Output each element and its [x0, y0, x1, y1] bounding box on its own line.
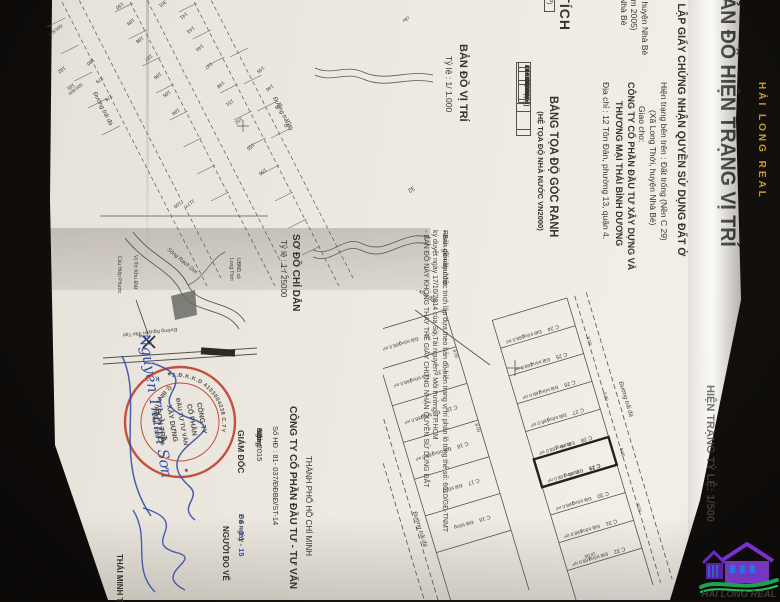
legend-label: Ranh giới khu đất [440, 230, 450, 285]
svg-text:C 21: C 21 [423, 330, 436, 339]
grantee-company-line1: CÔNG TY CỔ PHẦN ĐẦU TƯ XÂY DỰNG VÀ [626, 82, 636, 270]
svg-text:C 19: C 19 [445, 403, 458, 412]
site-pointer-label: Vị trí khu đất [406, 290, 437, 305]
map1000-scale: Tỷ lệ : 1/ 1.000 [444, 56, 454, 112]
svg-text:168.0 m²: 168.0 m² [383, 340, 402, 351]
svg-text:147: 147 [203, 60, 213, 70]
city-date-line: THÀNH PHỐ HỒ CHÍ MINH [304, 456, 313, 556]
svg-text:182: 182 [56, 64, 66, 74]
svg-text:C 17: C 17 [467, 477, 480, 486]
svg-text:168.0 m²: 168.0 m² [513, 361, 533, 372]
svg-text:146: 146 [264, 82, 274, 92]
svg-text:C 26: C 26 [563, 378, 576, 387]
surveyor-signature [118, 498, 213, 602]
coord-table-title: BẢNG TỌA ĐỘ GÓC RANH [547, 62, 559, 271]
logo-text: HAI LONG REAL [702, 589, 777, 599]
svg-text:168.0 m²: 168.0 m² [392, 377, 412, 388]
svg-text:151: 151 [224, 97, 234, 107]
svg-text:100: 100 [172, 199, 182, 209]
grantee-address: Địa chỉ : 12 Tôn Đản, phường 13, quận 4. [601, 82, 611, 239]
road-label: Đường trải đá [617, 381, 635, 419]
surveying-company-line: CÔNG TY CỔ PHẦN ĐẦU TƯ - TƯ VẤN [287, 406, 298, 589]
index-map-scale: Tỷ lệ : 1 / 25000 [279, 240, 288, 297]
bridge-label: Cầu Hiệp Phước [116, 256, 122, 294]
area-table-title: DIỆN TÍCH [557, 0, 573, 31]
svg-text:155: 155 [245, 141, 255, 151]
svg-text:606,600: 606,600 [47, 23, 63, 37]
svg-text:189: 189 [125, 16, 135, 26]
svg-text:8.00: 8.00 [635, 503, 642, 513]
ubnd-label: UBND xã [235, 258, 241, 279]
index-map-title: SƠ ĐỒ CHỈ DẪN [290, 234, 301, 311]
svg-text:32: 32 [406, 184, 415, 193]
contract-number: Số HĐ : 81- 037/ĐĐBĐ/ST-14 [271, 426, 280, 525]
document-title: BẢN ĐỒ HIỆN TRẠNG VỊ TRÍ [715, 0, 739, 247]
site-label: Vị Trí Khu Đất [132, 255, 138, 290]
status-line: Hiện trạng bên trên : Đất trống (Nền C 2… [659, 82, 669, 241]
coord-table-subtitle: (HỆ TỌA ĐỘ NHÀ NƯỚC VN2000) [536, 62, 545, 280]
svg-text:8.00: 8.00 [619, 447, 626, 457]
parcel-dividers [47, 3, 320, 255]
svg-text:144: 144 [194, 42, 204, 52]
svg-text:C 31: C 31 [605, 517, 618, 526]
row1-parcel-labels: C 24 C 25 C 26 C 27 C 28 C 29 C 30 C 31 … [547, 323, 626, 555]
map500-title: HIỆN TRẠNG TỶ LỆ: 1/500 [704, 385, 717, 522]
svg-text:186: 186 [152, 70, 162, 80]
svg-text:178: 178 [103, 92, 113, 102]
svg-text:168.0 m²: 168.0 m² [403, 414, 423, 425]
road-label: Đường trải đá [411, 511, 429, 549]
svg-text:8.00: 8.00 [452, 349, 459, 359]
hailong-real-logo: HAI LONG REAL [699, 537, 779, 599]
svg-text:188: 188 [134, 34, 144, 44]
svg-text:179: 179 [94, 74, 104, 84]
svg-text:168.0 m²: 168.0 m² [563, 528, 583, 539]
map1000-title: BẢN ĐỒ VỊ TRÍ [457, 44, 469, 122]
svg-text:152: 152 [233, 115, 243, 125]
index-pond [171, 290, 197, 320]
svg-text:190: 190 [114, 0, 124, 10]
svg-text:Đất trống: Đất trống [453, 519, 474, 531]
grantee-company-line2: THƯƠNG MẠI THÁI BÌNH DƯƠNG [614, 101, 624, 246]
logo-houses [703, 544, 773, 583]
svg-text:301: 301 [157, 0, 167, 8]
ubnd-label: Long Thới [228, 258, 234, 281]
watermark-vertical-text: HẢI LONG REAL [756, 82, 767, 200]
svg-text:184: 184 [170, 106, 180, 116]
svg-text:156: 156 [257, 166, 267, 176]
svg-text:168.0 m²: 168.0 m² [554, 500, 574, 511]
assign-label: Giao cho: [637, 106, 647, 142]
svg-text:8.00: 8.00 [602, 392, 609, 402]
clipped-source-note: di, huyện Nhà Bè năm 2005) n Nhà Bè [619, 0, 651, 55]
map-1-500: HIỆN TRẠNG TỶ LỆ: 1/500 C 24 C 25 C 26 C… [383, 290, 745, 600]
area-col1: Diện tích (m²) [544, 0, 555, 12]
svg-text:Đất trống: Đất trống [442, 482, 463, 494]
river-label: Sông Rạch Dơi [166, 247, 199, 276]
svg-text:148: 148 [215, 79, 225, 89]
svg-text:168.0 m²: 168.0 m² [505, 333, 525, 344]
photo-of-document: { "colors":{"stamp_red":"#c0392b","pen_b… [0, 0, 780, 600]
grid-coordinate-labels: 606,800 606,600 cầu [47, 15, 410, 96]
svg-text:C 30: C 30 [596, 490, 609, 499]
svg-text:C 24: C 24 [547, 323, 560, 332]
svg-text:C 16: C 16 [478, 513, 491, 522]
svg-text:C 25: C 25 [555, 351, 568, 360]
survey-document: BẢN ĐỒ HIỆN TRẠNG VỊ TRÍ ĐỂ LẬP GIẤY CHỨ… [45, 0, 745, 602]
row1-parcel-areas: 168.0 m² 168.0 m² 168.0 m² 168.0 m² 168.… [505, 333, 592, 567]
location-line: (Xã Long Thới, huyện Nhà Bè) [648, 110, 658, 226]
parcel-numbers: 301 141 143 144 147 148 151 152 155 156 … [56, 0, 415, 209]
svg-text:145: 145 [255, 64, 265, 74]
surveyor-label: NGƯỜI ĐO VẼ [221, 526, 230, 581]
svg-text:C 18: C 18 [456, 440, 469, 449]
document-subtitle: ĐỂ LẬP GIẤY CHỨNG NHẬN QUYỀN SỬ DỤNG ĐẤT… [675, 0, 687, 256]
canal-lines [313, 68, 433, 259]
road-label: Đường trải đá [271, 96, 294, 133]
svg-text:143: 143 [185, 24, 195, 34]
svg-text:168.0 m²: 168.0 m² [521, 389, 541, 400]
svg-text:168.0 m²: 168.0 m² [414, 450, 434, 461]
svg-text:8.00: 8.00 [474, 423, 481, 433]
svg-text:8.00: 8.00 [585, 336, 592, 346]
svg-text:C 20: C 20 [434, 367, 447, 376]
svg-text:C 32: C 32 [613, 545, 626, 554]
svg-text:168.0 m²: 168.0 m² [530, 417, 550, 428]
svg-text:C 27: C 27 [571, 406, 584, 415]
svg-text:cầu: cầu [401, 15, 410, 24]
